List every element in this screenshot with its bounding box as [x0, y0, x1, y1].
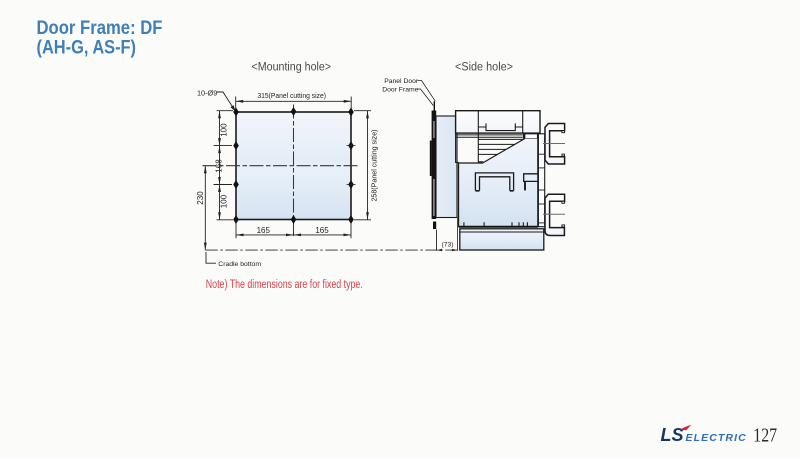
svg-text:(73): (73)	[441, 241, 453, 248]
svg-text:165: 165	[257, 226, 271, 235]
svg-text:(AH-G, AS-F): (AH-G, AS-F)	[37, 38, 137, 59]
svg-text:ELECTRIC: ELECTRIC	[686, 432, 747, 444]
svg-text:315(Panel cutting size): 315(Panel cutting size)	[257, 91, 326, 100]
svg-text:127: 127	[753, 424, 777, 446]
svg-text:Cradle bottom: Cradle bottom	[218, 261, 261, 268]
svg-text:Note) The dimensions are for f: Note) The dimensions are for fixed type.	[206, 279, 363, 291]
svg-text:165: 165	[315, 226, 329, 235]
svg-text:Panel Door: Panel Door	[384, 78, 419, 85]
svg-text:Door Frame: Door Frame	[382, 87, 418, 94]
svg-text:100: 100	[220, 194, 229, 208]
svg-text:10-Ø9: 10-Ø9	[197, 89, 217, 98]
svg-text:LS: LS	[661, 425, 684, 445]
svg-text:168: 168	[215, 159, 224, 173]
svg-text:230: 230	[196, 191, 205, 205]
svg-text:<Mounting hole>: <Mounting hole>	[252, 61, 332, 73]
svg-text:Door Frame: DF: Door Frame: DF	[37, 18, 163, 39]
svg-text:100: 100	[220, 123, 229, 137]
svg-text:258(Panel cutting size): 258(Panel cutting size)	[370, 130, 379, 202]
svg-text:<Side hole>: <Side hole>	[455, 61, 513, 73]
